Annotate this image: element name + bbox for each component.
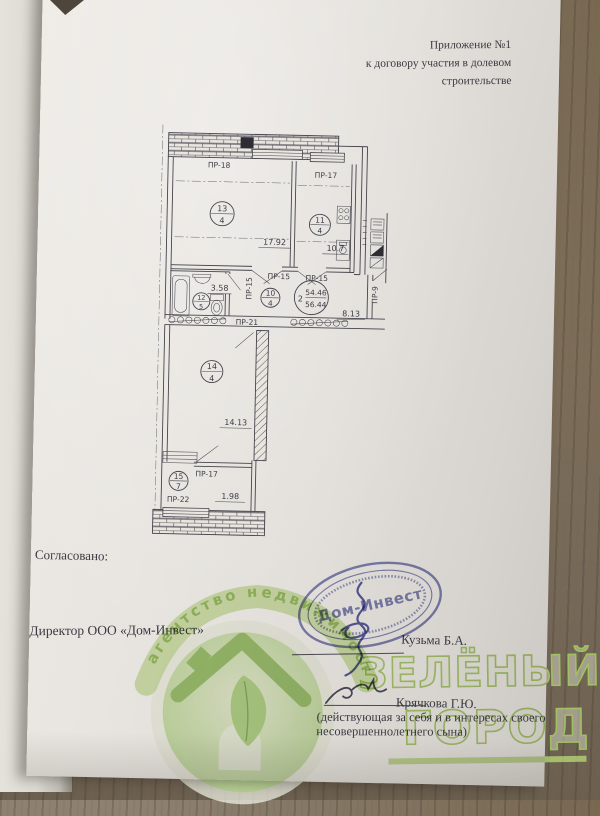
document-sheet: Приложение №1 к договору участия в долев… (26, 0, 561, 787)
apartment-summary-tag: 2 54.46 56.44 (294, 280, 329, 315)
svg-text:12: 12 (197, 294, 205, 302)
toilet-icon (210, 295, 223, 316)
washbasin-icon (193, 274, 211, 283)
watermark-word2: ГОРОД (402, 699, 590, 756)
watermark-word1: ЗЕЛЁНЫЙ (359, 645, 600, 698)
entry-label-pr9: ПР-9 (370, 286, 379, 304)
door-label-pr15-mid: ПР-15 (268, 272, 291, 281)
svg-text:4: 4 (268, 299, 273, 308)
floor-plan: ПР-18 ПР-17 13 4 17.92 11 4 10.7 ПР-15 П… (134, 118, 393, 548)
area-storage: 1.98 (221, 492, 239, 501)
room-tag-hall: 10 4 (261, 288, 280, 308)
svg-text:54.46: 54.46 (305, 288, 327, 297)
room-tag-bath: 12 5 (193, 293, 210, 311)
svg-text:4: 4 (219, 216, 224, 225)
area-room2: 14.13 (224, 418, 247, 427)
room-tag-living: 13 4 (210, 201, 234, 225)
bathtub-icon (172, 276, 190, 316)
area-kitchen: 10.7 (326, 244, 344, 253)
window-label-pr22: ПР-22 (167, 495, 190, 504)
svg-text:15: 15 (174, 472, 184, 481)
partition-label-pr21: ПР-21 (236, 318, 259, 327)
watermark-underline (388, 756, 586, 765)
stove-icon (337, 206, 350, 223)
svg-text:4: 4 (209, 374, 214, 383)
top-exterior-wall (168, 133, 368, 163)
axis-lines (175, 181, 350, 243)
bottom-exterior-wall (152, 507, 265, 535)
svg-text:56.44: 56.44 (305, 300, 327, 309)
svg-text:5: 5 (199, 303, 203, 311)
svg-text:10: 10 (266, 289, 276, 298)
photo-of-document: { "header": { "line1": "Приложение №1", … (0, 0, 600, 800)
window-label-pr17-top: ПР-17 (315, 171, 338, 180)
header-line1: Приложение №1 (307, 37, 511, 56)
door-label-pr17-bottom: ПР-17 (195, 469, 218, 478)
svg-text:14: 14 (207, 362, 217, 371)
floor-plan-drawing: ПР-18 ПР-17 13 4 17.92 11 4 10.7 ПР-15 П… (134, 118, 393, 548)
area-corridor: 8.13 (342, 309, 360, 318)
area-bath: 3.58 (211, 284, 229, 293)
svg-text:2: 2 (298, 294, 303, 303)
svg-text:11: 11 (315, 216, 325, 225)
svg-text:13: 13 (217, 204, 227, 213)
svg-text:7: 7 (176, 482, 181, 491)
area-living: 17.92 (263, 238, 286, 247)
svg-text:4: 4 (317, 226, 322, 235)
header-line2: к договору участия в долевом строительст… (307, 55, 511, 92)
room-tag-kitchen: 11 4 (309, 214, 330, 235)
door-label-pr15-left: ПР-15 (244, 277, 253, 300)
room-tag-storage: 15 7 (169, 471, 188, 491)
room-tag-room2: 14 4 (201, 360, 223, 383)
agreed-label: Согласовано: (35, 547, 109, 565)
window-label-pr18: ПР-18 (208, 160, 231, 169)
document-header: Приложение №1 к договору участия в долев… (307, 37, 511, 92)
agency-watermark-wordmark: ЗЕЛЁНЫЙ ГОРОД (359, 639, 600, 782)
